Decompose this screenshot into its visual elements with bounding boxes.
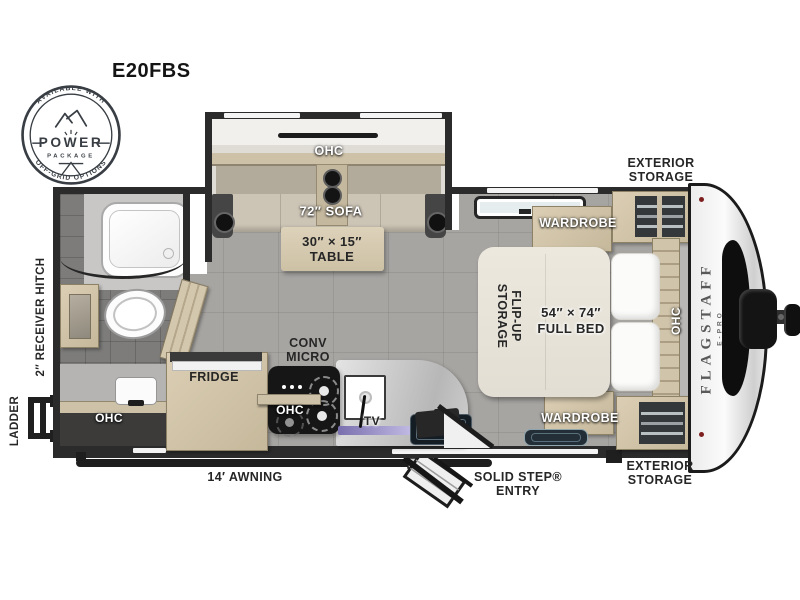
stove-knob-dots bbox=[282, 385, 304, 390]
label-receiver-hitch: 2″ RECEIVER HITCH bbox=[35, 257, 47, 376]
label-full-bed: 54″ × 74″ FULL BED bbox=[537, 305, 604, 337]
label-wardrobe-top: WARDROBE bbox=[539, 216, 617, 230]
label-conv-micro: CONV MICRO bbox=[286, 336, 330, 364]
bathroom-partition-wall bbox=[183, 194, 190, 290]
power-package-badge: AVAILABLE WITH OFF-GRID OPTIONS POWER PA… bbox=[20, 84, 122, 186]
sofa-seat-seam bbox=[280, 194, 281, 232]
slideout-window-right bbox=[360, 113, 442, 118]
toilet-seat bbox=[111, 294, 159, 334]
skylight-latch bbox=[519, 209, 531, 214]
wall-top-left bbox=[53, 187, 205, 194]
mountain-icon bbox=[56, 111, 87, 127]
label-wardrobe-bottom: WARDROBE bbox=[541, 411, 619, 425]
label-ohc-bath: OHC bbox=[95, 411, 123, 425]
wall-left-rear bbox=[53, 187, 60, 458]
led-light-bar bbox=[278, 133, 378, 138]
window-bedroom-top bbox=[487, 188, 598, 193]
label-ohc-bed: OHC bbox=[669, 307, 683, 335]
medicine-cabinet bbox=[60, 284, 99, 348]
corner-cabinet-top bbox=[612, 191, 690, 243]
badge-power-text: POWER bbox=[39, 135, 104, 150]
badge-bottom-emblem bbox=[59, 163, 83, 175]
slideout-wall-left bbox=[205, 112, 212, 262]
label-exterior-storage-top: EXTERIOR STORAGE bbox=[627, 156, 694, 184]
label-solid-step-entry: SOLID STEP® ENTRY bbox=[474, 470, 562, 498]
ohc-shelf-slide bbox=[212, 119, 445, 145]
jack-axle bbox=[778, 314, 784, 320]
label-exterior-storage-bottom: EXTERIOR STORAGE bbox=[626, 459, 693, 487]
bumper-notch bbox=[606, 450, 622, 463]
entry-mat bbox=[524, 429, 588, 446]
label-fridge: FRIDGE bbox=[189, 370, 239, 384]
entry-threshold bbox=[392, 449, 598, 454]
brand-name: FLAGSTAFF bbox=[699, 233, 716, 423]
label-ohc-kitchen: OHC bbox=[276, 403, 304, 417]
label-ladder: LADDER bbox=[9, 396, 21, 446]
label-awning: 14′ AWNING bbox=[207, 470, 282, 484]
window-bath-bottom bbox=[133, 448, 166, 453]
page-title: E20FBS bbox=[112, 60, 191, 83]
label-tv: TV bbox=[364, 414, 380, 428]
cupholder bbox=[214, 212, 235, 233]
slideout-window-left bbox=[224, 113, 300, 118]
jack-wheel bbox=[784, 304, 800, 336]
awning-bracket bbox=[76, 452, 86, 461]
brand-mark: FLAGSTAFF E-PRO bbox=[699, 233, 724, 423]
floorplan-page: E20FBS AVAILABLE WITH OFF-GRID OPTIONS P… bbox=[0, 0, 800, 600]
clearance-light bbox=[699, 432, 704, 437]
mirror bbox=[69, 294, 91, 339]
corner-cabinet-bottom bbox=[616, 396, 690, 450]
label-sofa: 72″ SOFA bbox=[300, 204, 363, 219]
propane-cover bbox=[739, 289, 777, 349]
slideout-wall-right bbox=[445, 112, 452, 230]
label-table: 30″ × 15″ TABLE bbox=[302, 234, 362, 264]
sun-icon bbox=[65, 130, 77, 135]
label-ohc-slide: OHC bbox=[315, 144, 344, 158]
cupholder bbox=[323, 186, 342, 205]
label-flip-up-storage: FLIP-UP STORAGE bbox=[495, 284, 523, 348]
brand-series: E-PRO bbox=[717, 233, 724, 423]
pillow bbox=[611, 253, 660, 320]
pillow bbox=[611, 322, 660, 391]
clearance-light bbox=[699, 197, 704, 202]
badge-package-text: PACKAGE bbox=[47, 153, 95, 159]
bath-faucet bbox=[128, 400, 144, 406]
